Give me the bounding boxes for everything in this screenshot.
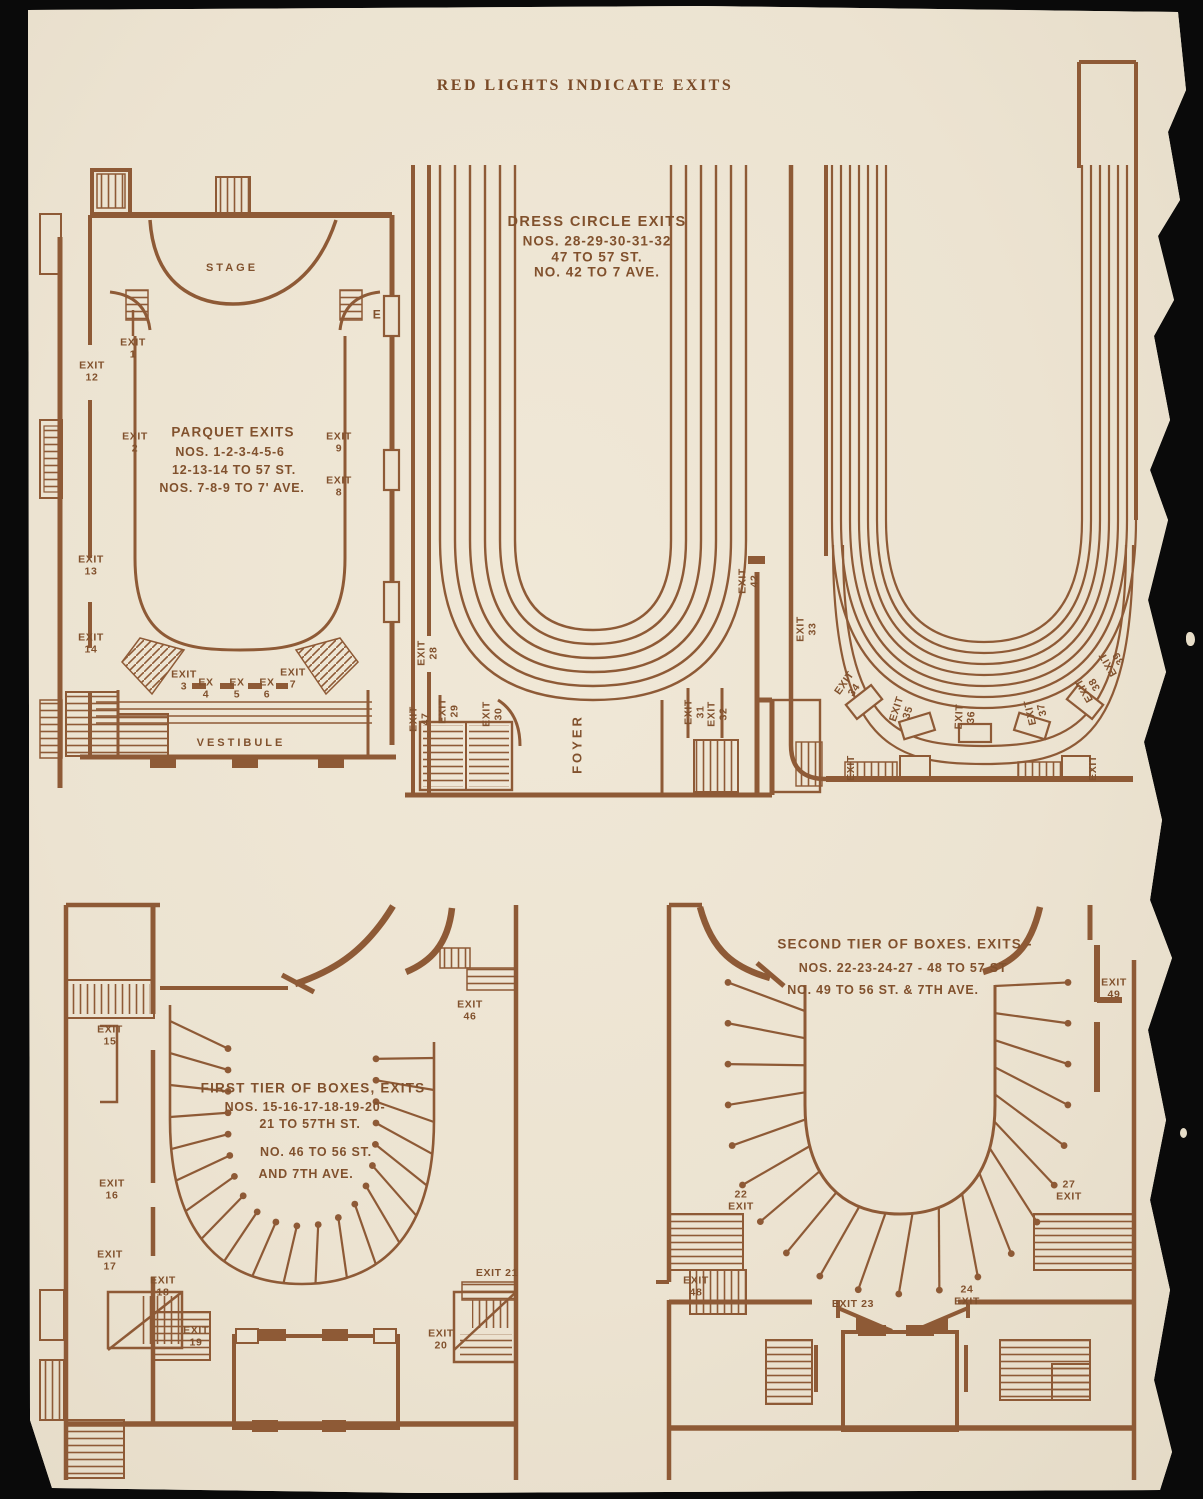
first-tier-note-title: FIRST TIER OF BOXES, EXITS — [201, 1080, 426, 1095]
exit-label-27: 27 EXIT — [1056, 1179, 1082, 1203]
exit-label-29: EXIT 29 — [437, 698, 461, 724]
exit-label-17: EXIT 17 — [97, 1249, 123, 1273]
parquet-note-line: 12-13-14 TO 57 ST. — [172, 463, 296, 477]
exit-label-2: EXIT 2 — [122, 431, 148, 455]
exit-label-19: EXIT 19 — [183, 1325, 209, 1349]
parquet-note-line: NOS. 7-8-9 TO 7' AVE. — [159, 481, 304, 495]
exit-label-20: EXIT 20 — [428, 1328, 454, 1352]
exit-label-16: EXIT 16 — [99, 1178, 125, 1202]
exit-label-42: EXIT 42 — [737, 568, 761, 594]
exit-label-12: EXIT 12 — [79, 360, 105, 384]
parquet-note-title: PARQUET EXITS — [171, 424, 294, 439]
second-tier-note-title: SECOND TIER OF BOXES. EXITS - — [777, 936, 1032, 951]
first-tier-note-line: NOS. 15-16-17-18-19-20- — [225, 1100, 386, 1114]
exit-label-7: EXIT 7 — [280, 667, 306, 691]
exit-label-14: EXIT 14 — [78, 632, 104, 656]
exit-label-13: EXIT 13 — [78, 554, 104, 578]
exit-label-balcony-right: EXIT — [1088, 755, 1100, 781]
page-title: RED LIGHTS INDICATE EXITS — [437, 77, 734, 95]
exit-label-48: EXIT 48 — [683, 1275, 709, 1299]
exit-label-9: EXIT 9 — [326, 431, 352, 455]
exit-label-1: EXIT 1 — [120, 337, 146, 361]
stage-label: STAGE — [206, 262, 258, 274]
exit-label-28: EXIT 28 — [416, 640, 440, 666]
exit-label-15: EXIT 15 — [97, 1024, 123, 1048]
exit-label-8: EXIT 8 — [326, 475, 352, 499]
exit-label-47: EXIT 47 — [408, 706, 432, 732]
dress-circle-note-line: NOS. 28-29-30-31-32 — [523, 233, 672, 248]
exit-label-33: EXIT 33 — [795, 616, 819, 642]
second-tier-note-line: NOS. 22-23-24-27 - 48 TO 57 ST — [799, 961, 1008, 975]
scanned-document-page: RED LIGHTS INDICATE EXITS STAGE EXIT 12 … — [0, 0, 1203, 1499]
exit-label-36: EXIT 36 — [954, 704, 979, 731]
exit-label-5: EX 5 — [229, 677, 244, 701]
exit-label-23: EXIT 23 — [832, 1299, 874, 1311]
exit-label-24: 24 EXIT — [954, 1284, 980, 1308]
exit-label-6: EX 6 — [259, 677, 274, 701]
first-tier-note-line: NO. 46 TO 56 ST. — [260, 1145, 372, 1159]
dress-circle-note-line: 47 TO 57 ST. — [551, 249, 642, 264]
foyer-label: FOYER — [571, 714, 586, 774]
balcony-plan — [791, 62, 1136, 779]
exit-label-30: EXIT 30 — [481, 701, 505, 727]
exit-label-18: EXIT 18 — [150, 1275, 176, 1299]
exit-label-31: EXIT 31 — [683, 699, 707, 725]
exit-label-22: 22 EXIT — [728, 1189, 754, 1213]
parquet-note-line: NOS. 1-2-3-4-5-6 — [175, 445, 284, 459]
dress-circle-note-line: NO. 42 TO 7 AVE. — [534, 264, 660, 279]
exit-label-4: EX 4 — [198, 677, 213, 701]
exit-label-46: EXIT 46 — [457, 999, 483, 1023]
stage-door-label: E — [373, 308, 382, 321]
vestibule-label: VESTIBULE — [197, 737, 286, 749]
exit-label-49: EXIT 49 — [1101, 977, 1127, 1001]
exit-label-21: EXIT 21 — [476, 1268, 518, 1280]
dress-circle-note-title: DRESS CIRCLE EXITS — [507, 214, 686, 230]
first-tier-note-line: 21 TO 57TH ST. — [259, 1117, 360, 1131]
exit-label-balcony-left: EXIT — [846, 755, 858, 781]
first-tier-note-line: AND 7TH AVE. — [258, 1167, 353, 1181]
exit-label-32: EXIT 32 — [706, 701, 730, 727]
second-tier-note-line: NO. 49 TO 56 ST. & 7TH AVE. — [787, 983, 979, 997]
exit-label-3: EXIT 3 — [171, 669, 197, 693]
